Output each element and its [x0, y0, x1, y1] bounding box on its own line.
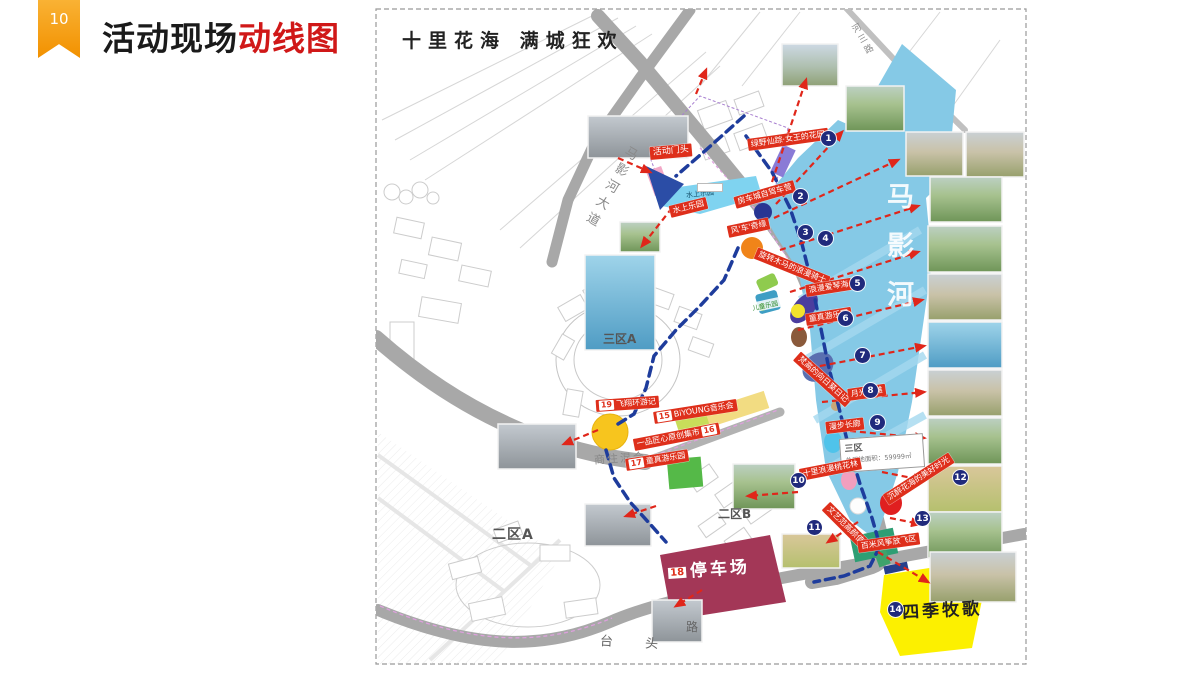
photos: [498, 44, 1024, 642]
stop-circle-5: 5: [850, 276, 865, 291]
stop-circle-6: 6: [838, 311, 853, 326]
parking-label: 18停车场: [667, 552, 750, 583]
route-stop-15-text: BiYOUNG音乐会: [673, 400, 734, 418]
stop-circle-8: 8: [863, 383, 878, 398]
route-stop-16-text: 一品匠心原创集市: [636, 427, 701, 448]
area-value: 59999㎡: [884, 452, 912, 462]
stop-label-9: 漫步长廊: [825, 417, 864, 434]
stop-circle-11: 11: [807, 520, 822, 535]
road-name-top-right: 河三路: [848, 21, 877, 59]
page-number-bookmark: 10: [38, 0, 80, 58]
stop-label-10: 十里浪漫桃花林: [799, 457, 862, 481]
entrance-label: 活动门头: [649, 143, 692, 160]
pasture-label: 四季牧歌: [901, 594, 982, 623]
map-canvas: [0, 0, 1200, 675]
route-stop-16-num: 16: [701, 424, 718, 436]
road-name-bottom-char: 路: [686, 618, 698, 635]
stop-label-1: 绿野仙踪·女王的花园: [747, 128, 828, 151]
parking-text: 停车场: [689, 557, 750, 581]
building-outlines: [384, 91, 772, 627]
hatched-area: [378, 432, 560, 664]
route-stop-19-text: 飞翔环游记: [616, 397, 657, 409]
road-name-left-avenue: 马影河大道: [578, 142, 642, 234]
stop-circle-10: 10: [791, 473, 806, 488]
parking-num: 18: [668, 567, 687, 579]
kids-park-chip: 儿童乐园: [749, 297, 780, 313]
route-stop-label-16: 一品匠心原创集市16: [633, 422, 721, 450]
stop-circle-4: 4: [818, 231, 833, 246]
stop-circle-13: 13: [915, 511, 930, 526]
slide: 10 活动现场动线图 十里花海 满城狂欢 马影河 马影河大道 河三路 台 头 路…: [0, 0, 1200, 675]
route-stop-label-15: 15BiYOUNG音乐会: [653, 399, 737, 424]
roads: [376, 8, 1024, 642]
road-name-bottom: 台 头: [600, 630, 673, 653]
stop-circle-14: 14: [888, 602, 903, 617]
route-stop-19-num: 19: [599, 400, 615, 411]
zone-label-3a: 三区A: [603, 330, 636, 347]
route-stop-label-19: 19飞翔环游记: [596, 396, 660, 412]
stop-circle-3: 3: [798, 225, 813, 240]
slide-title: 活动现场动线图: [102, 12, 340, 60]
slide-title-red: 动线图: [238, 19, 340, 58]
stop-circle-1: 1: [821, 131, 836, 146]
river-name-label: 马影河: [878, 182, 917, 329]
stop-label-7: 梵高的向日葵日记: [793, 352, 853, 408]
route-stop-17-text: 童真游乐园: [645, 451, 686, 466]
zone-label-2b: 二区B: [718, 505, 751, 522]
stop-circle-12: 12: [953, 470, 968, 485]
water-park-red-label: 水上乐园: [669, 197, 709, 218]
stop-label-2: 房车城自驾车营: [733, 180, 796, 209]
minor-streets: [378, 455, 560, 660]
stop-label-13: 百米风筝放飞区: [857, 532, 920, 553]
bridge-chip: [697, 183, 723, 192]
stop-circle-7: 7: [855, 348, 870, 363]
stop-circle-9: 9: [870, 415, 885, 430]
map-title-banner: 十里花海 满城狂欢: [402, 26, 624, 53]
stop-label-3: 风'车'奇缘: [727, 217, 771, 238]
page-number: 10: [49, 10, 68, 28]
route-stop-15-num: 15: [656, 410, 672, 422]
route-stop-17-num: 17: [628, 457, 644, 469]
slide-title-black: 活动现场: [102, 19, 238, 58]
zone-label-2a: 二区A: [492, 524, 534, 544]
stop-circle-2: 2: [793, 189, 808, 204]
